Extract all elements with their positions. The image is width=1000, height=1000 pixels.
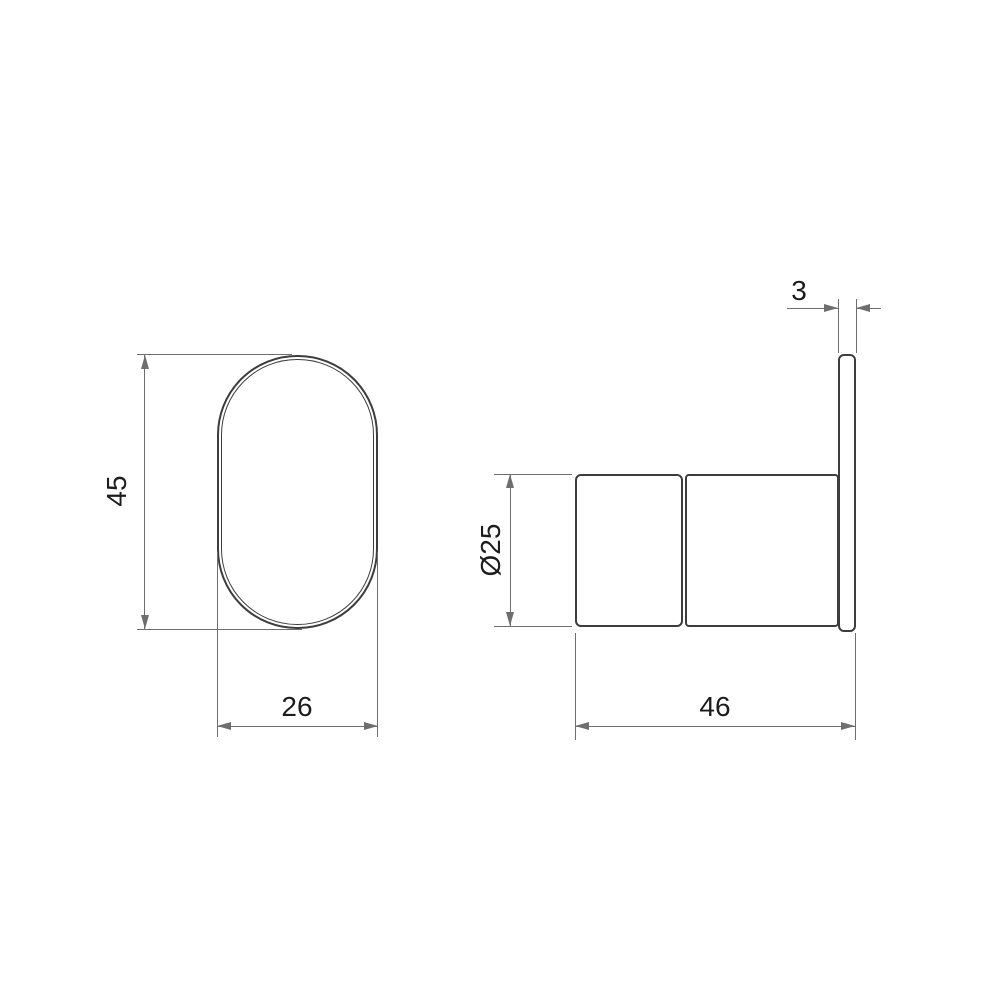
hook-body-outline [685,474,839,627]
front-face-inner-edge [221,359,374,625]
extension-line-left [217,552,218,737]
arrowhead-down-icon [141,615,149,629]
arrowhead-down-icon [506,612,514,626]
height-dimension-label: 45 [103,475,131,506]
hook-end-cap-outline [575,474,683,627]
plate-thickness-dimension-label: 3 [791,277,807,305]
arrowhead-up-icon [141,355,149,369]
depth-dimension-label: 46 [699,693,730,721]
dimension-line-vertical [510,474,511,626]
dimension-line-vertical [144,355,145,629]
dimension-line-horizontal [575,726,855,727]
technical-drawing-canvas: 45 26 Ø25 [0,0,1000,1000]
arrowhead-right-icon [364,722,378,730]
dimension-line-horizontal [217,726,378,727]
arrowhead-left-icon [217,722,231,730]
extension-line-left [838,299,839,353]
arrowhead-up-icon [506,474,514,488]
extension-line-right [377,552,378,737]
arrowhead-left-icon [856,304,870,312]
extension-line-right [855,633,856,740]
extension-line-bottom [494,626,572,627]
extension-line-bottom [137,629,302,630]
extension-line-top [137,354,292,355]
width-dimension-label: 26 [281,693,312,721]
wall-plate-outline [838,354,856,632]
arrowhead-right-icon [824,304,838,312]
arrowhead-left-icon [575,722,589,730]
arrowhead-right-icon [841,722,855,730]
front-face-outline [217,355,378,629]
diameter-dimension-label: Ø25 [477,524,505,577]
